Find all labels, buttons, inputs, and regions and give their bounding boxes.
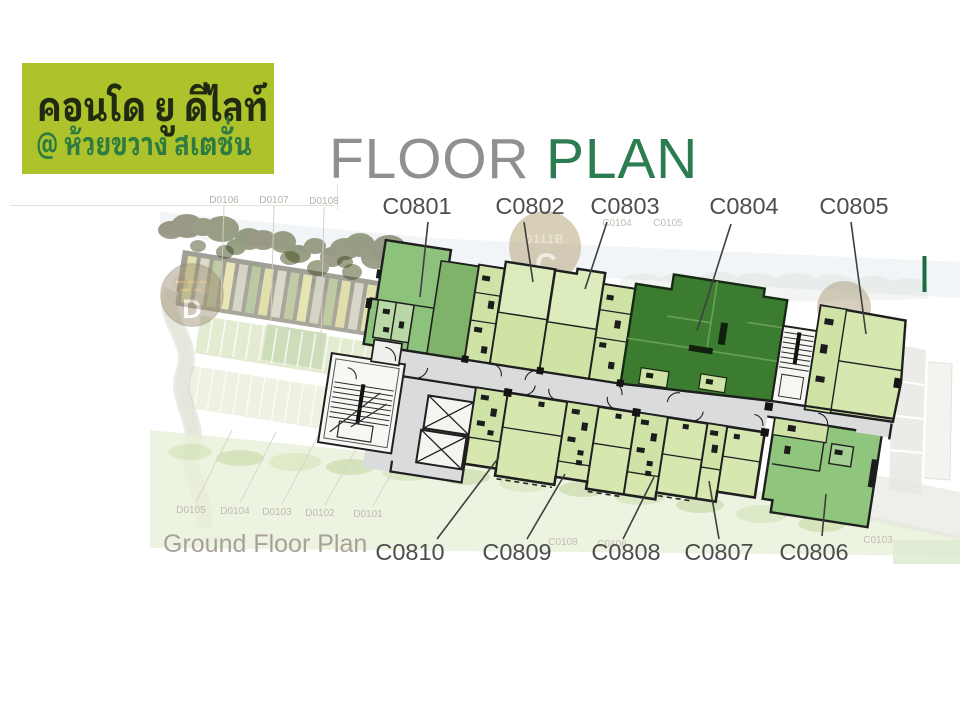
svg-text:C0802: C0802 [495,193,564,219]
svg-text:C0803: C0803 [590,193,659,219]
svg-text:D0105: D0105 [176,505,206,516]
svg-text:D0102: D0102 [305,508,335,519]
svg-text:C0805: C0805 [819,193,888,219]
svg-text:D0106: D0106 [209,195,239,206]
svg-text:D0103: D0103 [262,507,292,518]
svg-text:C0804: C0804 [709,193,778,219]
svg-text:0111B: 0111B [525,232,564,246]
svg-text:D0101: D0101 [353,509,383,520]
svg-text:FLOOR PLAN: FLOOR PLAN [329,127,698,191]
svg-text:C0809: C0809 [482,539,551,565]
svg-text:C0103: C0103 [863,535,893,546]
svg-text:C0108: C0108 [548,537,578,548]
svg-text:D0107: D0107 [259,195,289,206]
svg-text:C0807: C0807 [684,539,753,565]
svg-text:D: D [182,294,202,324]
svg-text:D0104: D0104 [220,506,250,517]
svg-text:C0801: C0801 [382,193,451,219]
svg-text:C0810: C0810 [375,539,444,565]
svg-text:Ground Floor Plan: Ground Floor Plan [163,530,367,558]
svg-text:C0806: C0806 [779,539,848,565]
svg-text:D0108: D0108 [309,196,339,207]
svg-text:C0105: C0105 [653,218,683,229]
svg-text:C0808: C0808 [591,539,660,565]
